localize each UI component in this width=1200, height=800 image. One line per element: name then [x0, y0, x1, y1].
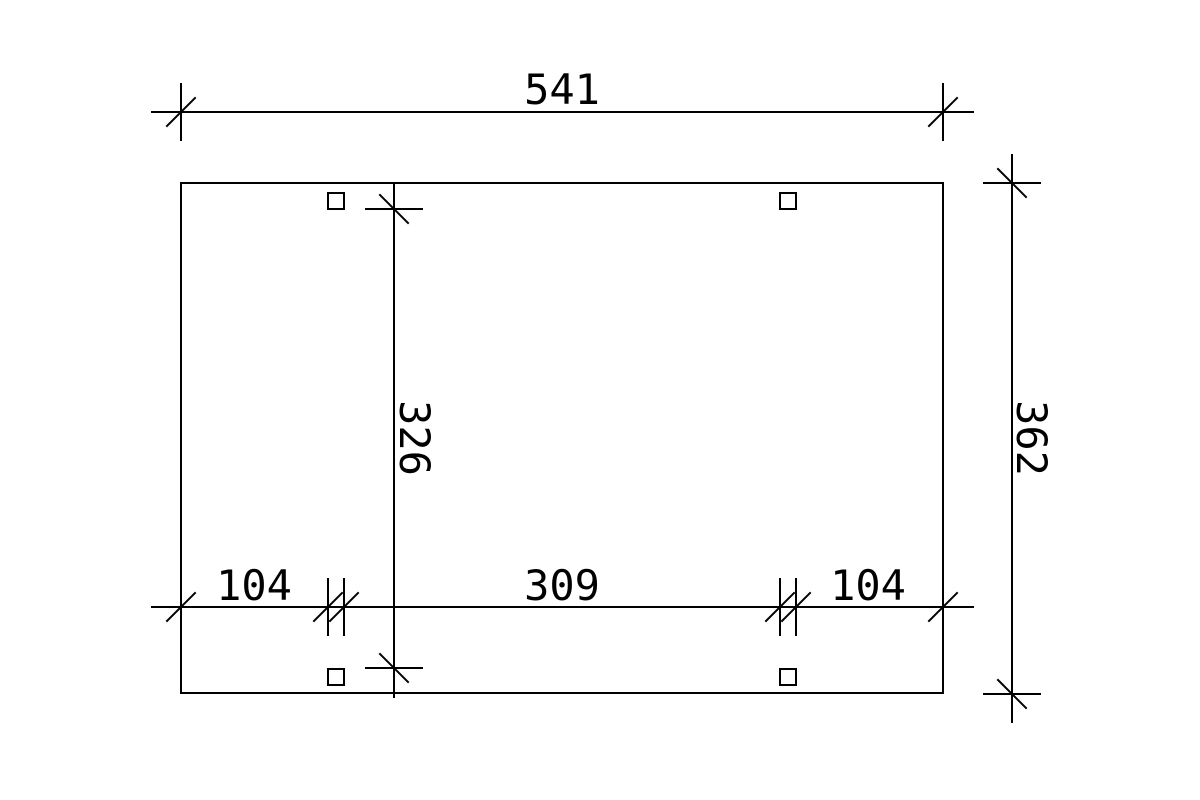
dim-label-post-span: 309 — [524, 561, 600, 610]
post-bottom-right — [780, 669, 796, 685]
post-bottom-left — [328, 669, 344, 685]
technical-drawing-canvas: 541 362 326 104 309 104 — [0, 0, 1200, 800]
drawing-linework — [152, 84, 1040, 722]
dim-label-total-depth: 362 — [1007, 400, 1056, 476]
dim-label-left-overhang: 104 — [216, 561, 292, 610]
post-top-right — [780, 193, 796, 209]
carport-dimension-drawing: 541 362 326 104 309 104 — [0, 0, 1200, 800]
carport-outline-rect — [181, 183, 943, 693]
dim-label-total-width: 541 — [524, 65, 600, 114]
post-top-left — [328, 193, 344, 209]
drawing-labels: 541 362 326 104 309 104 — [216, 65, 1056, 610]
dim-label-right-overhang: 104 — [830, 561, 906, 610]
dim-label-inner-depth: 326 — [390, 400, 439, 476]
